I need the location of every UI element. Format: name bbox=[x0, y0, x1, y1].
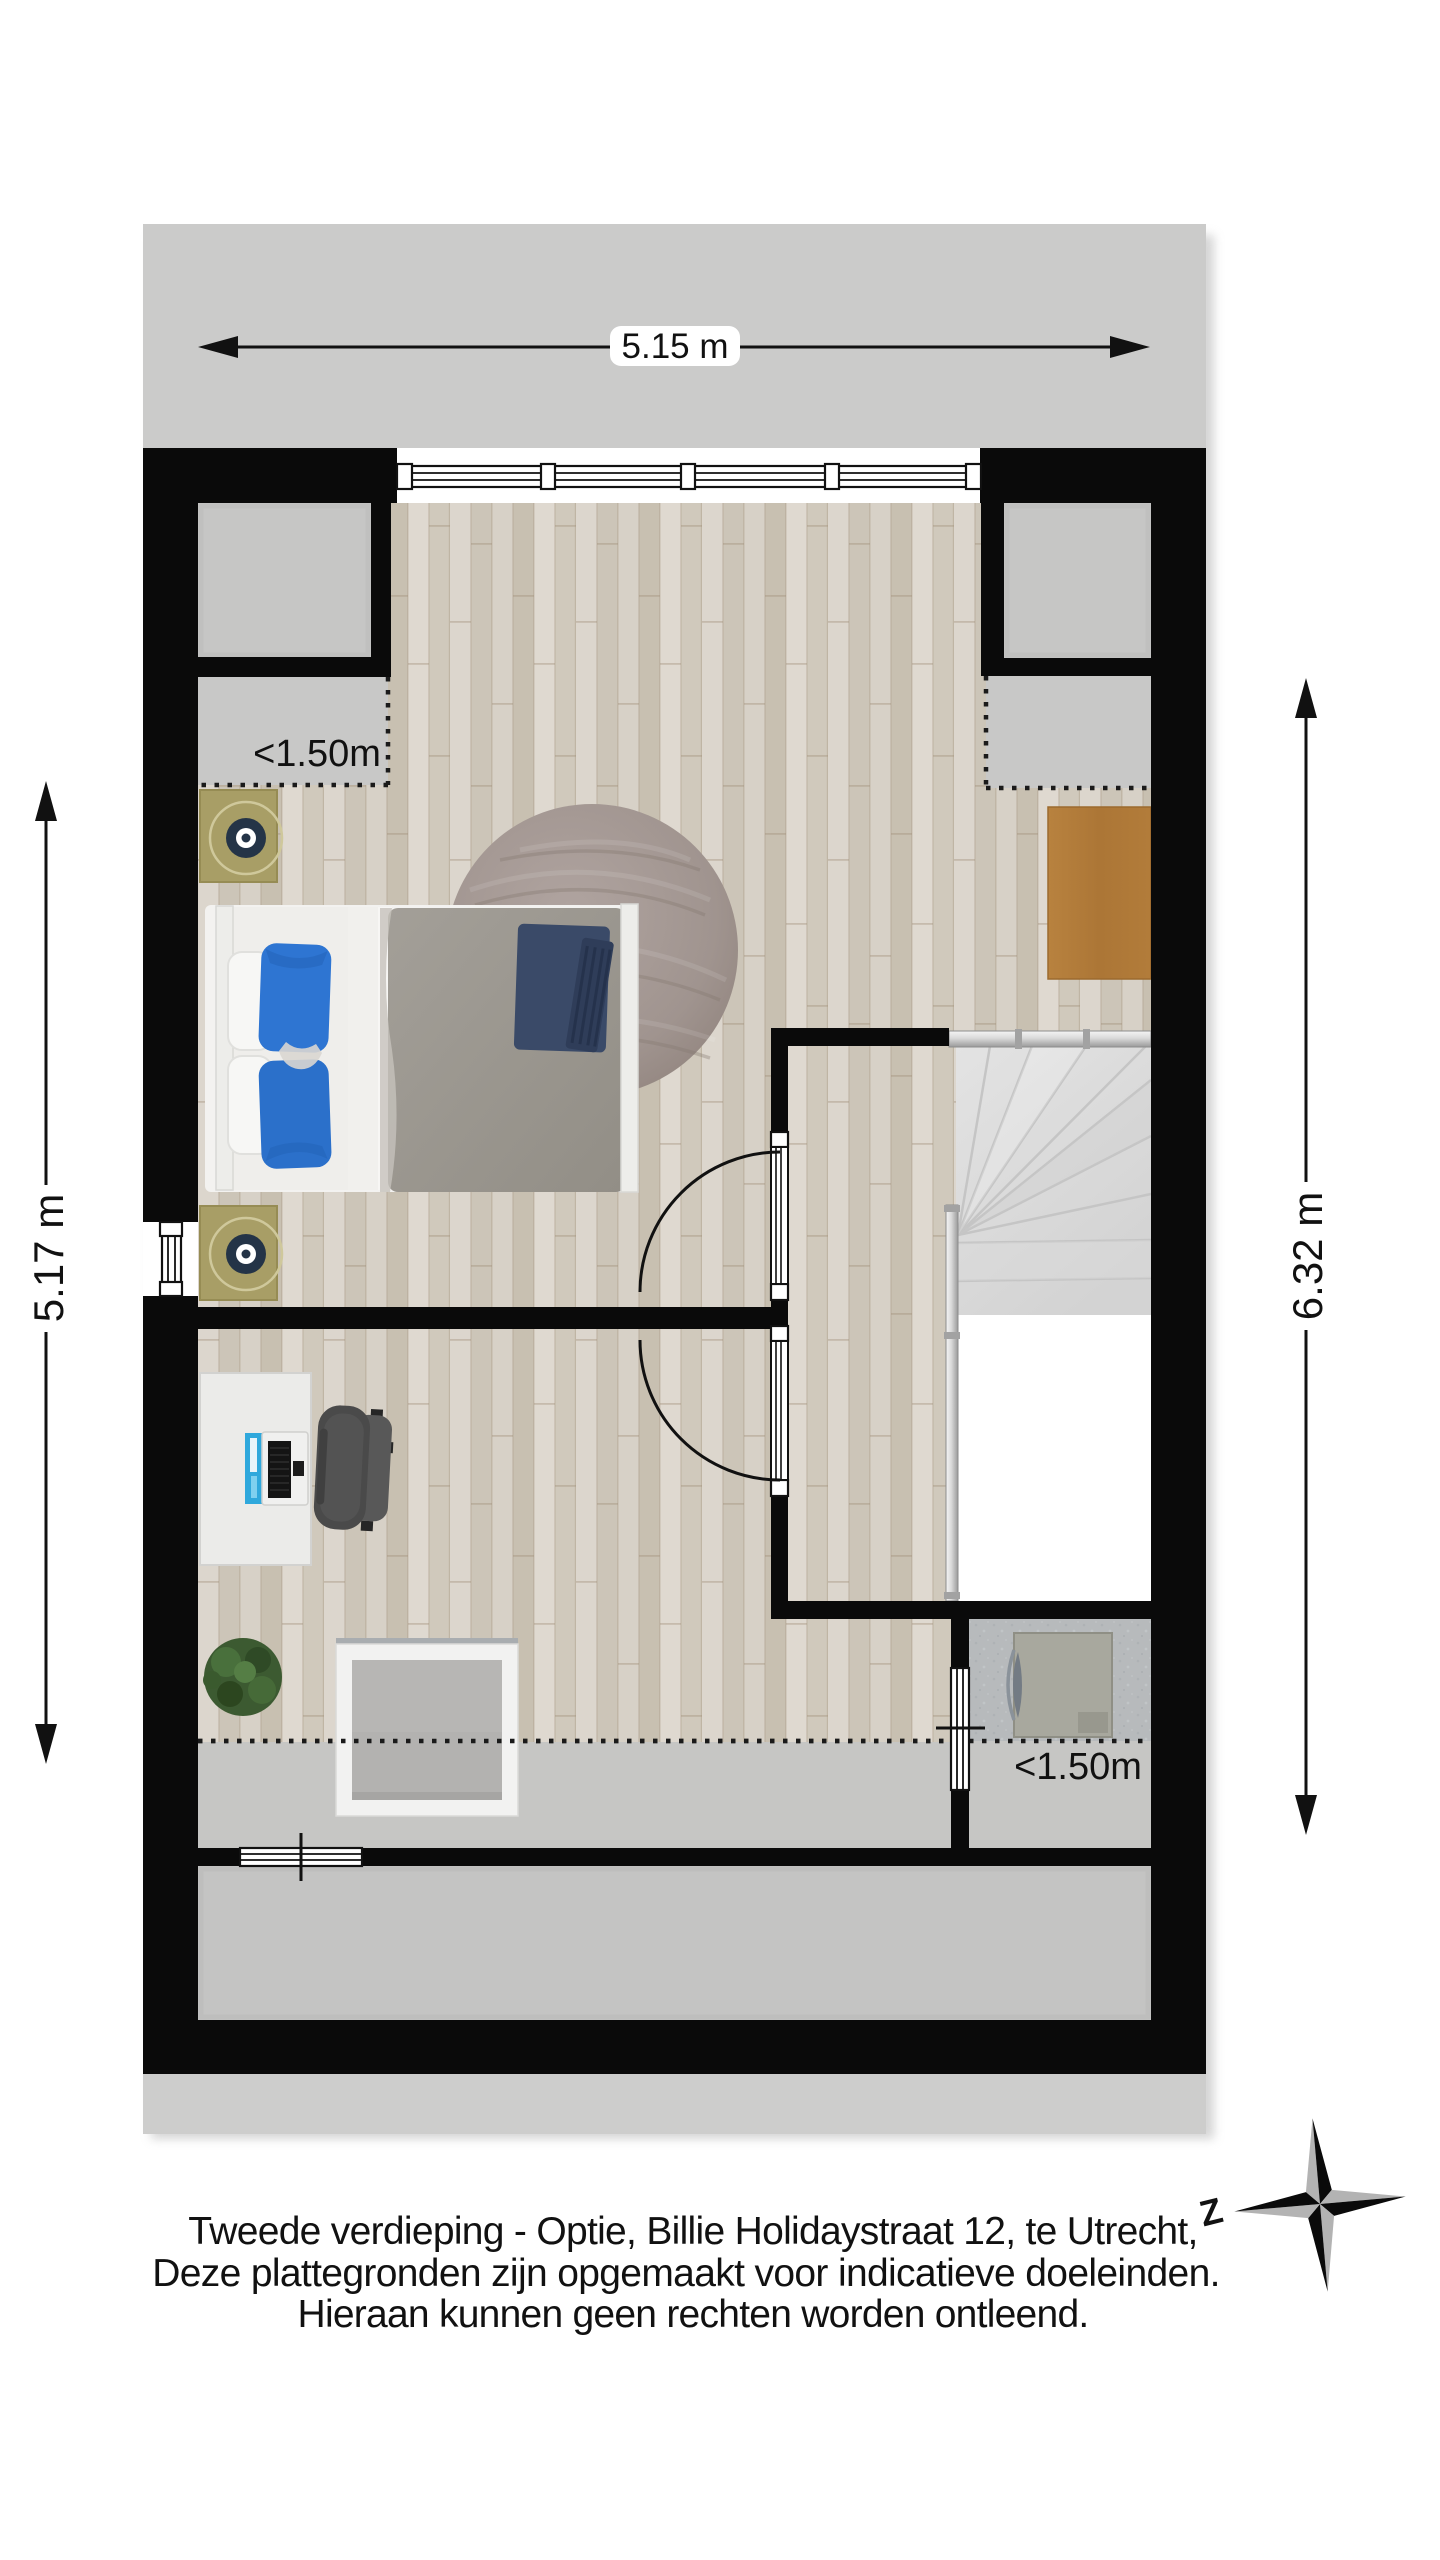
svg-text:6.32 m: 6.32 m bbox=[1284, 1192, 1331, 1320]
svg-text:5.17 m: 5.17 m bbox=[25, 1194, 72, 1322]
svg-text:<1.50m: <1.50m bbox=[253, 733, 381, 775]
svg-text:5.15 m: 5.15 m bbox=[622, 327, 729, 366]
svg-text:<1.50m: <1.50m bbox=[1014, 1746, 1142, 1788]
svg-text:Hieraan kunnen geen rechten wo: Hieraan kunnen geen rechten worden ontle… bbox=[298, 2293, 1089, 2336]
svg-text:Deze plattegronden zijn opgema: Deze plattegronden zijn opgemaakt voor i… bbox=[152, 2252, 1220, 2295]
svg-text:Tweede verdieping - Optie, Bil: Tweede verdieping - Optie, Billie Holida… bbox=[188, 2210, 1197, 2253]
